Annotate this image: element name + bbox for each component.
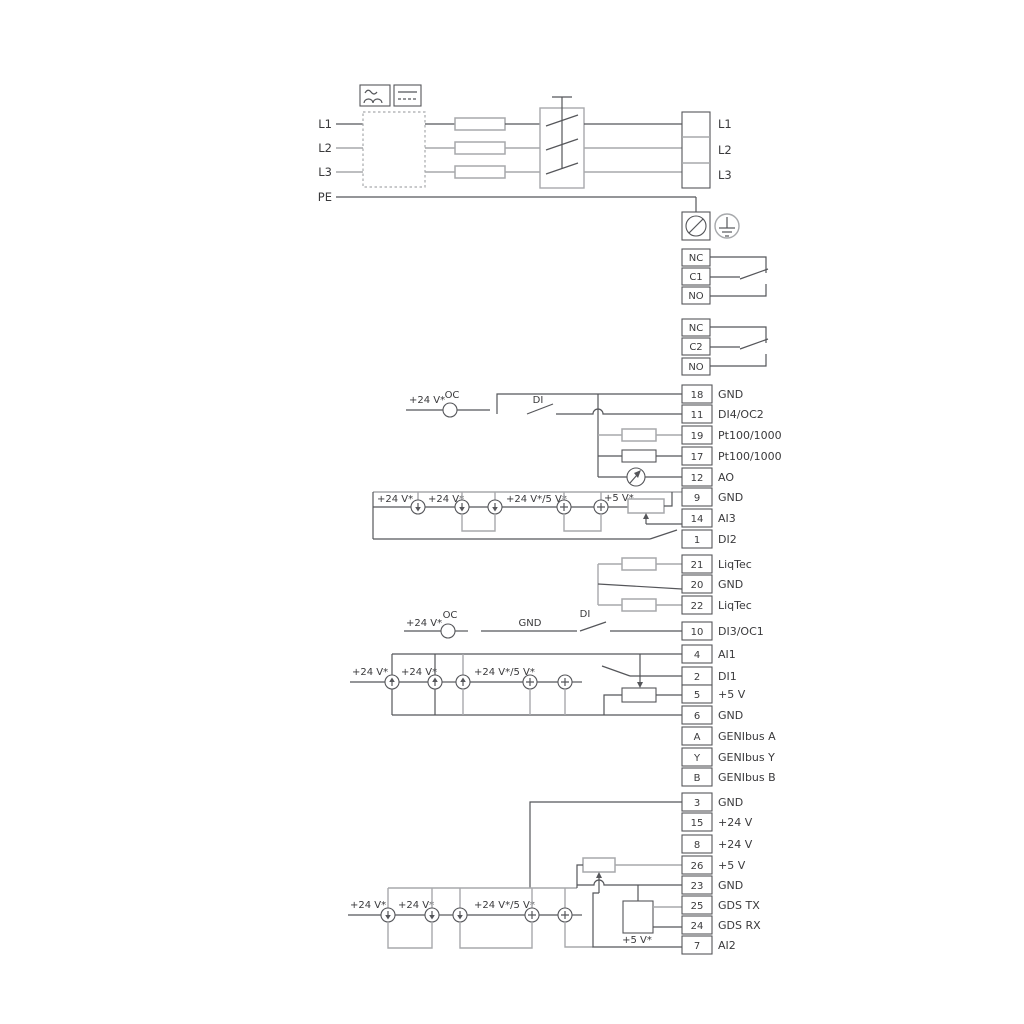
terminal-label: AI2	[718, 939, 736, 952]
terminal-row: 20GND	[682, 575, 743, 593]
relay1-nc: NC	[689, 253, 703, 264]
terminal-row: 19Pt100/1000	[682, 426, 782, 444]
terminal-label: GND	[718, 388, 743, 401]
di3-switch	[580, 622, 606, 631]
terminal-row: 12AO	[682, 468, 734, 486]
terminal-row: 15+24 V	[682, 813, 753, 831]
di2-switch	[650, 530, 677, 539]
label-di: DI	[533, 395, 544, 406]
relay-1: NC C1 NO	[682, 249, 768, 304]
terminal-number: 11	[691, 410, 704, 421]
earth-ground-icon	[715, 214, 739, 238]
label-gnd: GND	[519, 618, 542, 629]
terminal-row: 24GDS RX	[682, 916, 761, 934]
terminal-row: 23GND	[682, 876, 743, 894]
label-24v: +24 V*	[409, 395, 445, 406]
circuit-liqtec	[598, 558, 682, 611]
terminal-label: GND	[718, 879, 743, 892]
oc-source-icon	[441, 624, 455, 638]
label-24v-5v: +24 V*/5 V*	[474, 900, 535, 911]
terminal-number: 7	[694, 941, 700, 952]
terminal-number: A	[694, 732, 701, 743]
output-label-l1: L1	[718, 117, 732, 131]
terminal-number: 26	[691, 861, 704, 872]
di1-switch	[602, 666, 630, 676]
terminal-number: 6	[694, 711, 700, 722]
analog-output-meter-icon	[627, 468, 645, 486]
terminal-row: 9GND	[682, 488, 743, 506]
terminal-row: 4AI1	[682, 645, 736, 663]
terminal-label: +5 V	[718, 688, 746, 701]
liqtec-sensor-2	[622, 599, 656, 611]
circuit-bottom: +24 V* +24 V* +24 V*/5 V*	[348, 802, 682, 948]
ac-symbol-icon	[360, 85, 390, 106]
terminal-label: GDS RX	[718, 919, 761, 932]
terminal-number: 18	[691, 390, 704, 401]
terminal-row: AGENIbus A	[682, 727, 776, 745]
terminal-strip-b: 21LiqTec 20GND 22LiqTec	[682, 555, 752, 614]
fuse-l1	[455, 118, 505, 130]
terminal-number: 20	[691, 580, 704, 591]
terminal-strip-c: 10DI3/OC1	[682, 622, 764, 640]
terminal-strip-e: AGENIbus A YGENIbus Y BGENIbus B	[682, 727, 776, 786]
terminal-row: 26+5 V	[682, 856, 746, 874]
terminal-row: 10DI3/OC1	[682, 622, 764, 640]
relay2-switch	[740, 339, 768, 349]
liqtec-sensor-1	[622, 558, 656, 570]
dc-symbol-icon	[394, 85, 421, 106]
output-label-l3: L3	[718, 168, 732, 182]
pe-terminal-icon	[682, 212, 710, 240]
terminal-row: 8+24 V	[682, 835, 753, 853]
input-label-pe: PE	[318, 190, 332, 204]
wiring-diagram: L1 L2 L3 PE	[0, 0, 1024, 1024]
gds-sensor: +5 V*	[622, 885, 682, 946]
terminal-number: 24	[691, 921, 704, 932]
terminal-row: 22LiqTec	[682, 596, 752, 614]
terminal-number: 9	[694, 493, 700, 504]
main-switch	[540, 97, 584, 188]
circuit-ai3: +24 V* +24 V* +24 V*/5 V* +5 V*	[373, 492, 682, 539]
power-section: L1 L2 L3 PE	[318, 85, 732, 212]
terminal-row: 3GND	[682, 793, 743, 811]
label-24v-a: +24 V*	[352, 667, 388, 678]
oc-source-icon	[443, 403, 457, 417]
wiring-diagram-page: L1 L2 L3 PE	[0, 0, 1024, 1024]
terminal-row: 6GND	[682, 706, 743, 724]
terminal-number: 19	[691, 431, 704, 442]
terminal-label: AI1	[718, 648, 736, 661]
terminal-number: 2	[694, 672, 700, 683]
terminal-strip-a: 18GND 11DI4/OC2 19Pt100/1000 17Pt100/100…	[682, 385, 782, 548]
terminal-row: 25GDS TX	[682, 896, 760, 914]
terminal-number: 8	[694, 840, 700, 851]
terminal-number: Y	[693, 753, 701, 764]
terminal-number: 14	[691, 514, 704, 525]
terminal-label: GND	[718, 709, 743, 722]
terminal-number: 23	[691, 881, 704, 892]
relay2-nc: NC	[689, 323, 703, 334]
terminal-label: DI1	[718, 670, 737, 683]
terminal-label: +24 V	[718, 816, 753, 829]
input-label-l2: L2	[318, 141, 332, 155]
relay1-no: NO	[688, 291, 703, 302]
terminal-label: DI2	[718, 533, 737, 546]
terminal-number: 12	[691, 473, 704, 484]
terminal-label: GENIbus A	[718, 730, 776, 743]
terminal-row: 11DI4/OC2	[682, 405, 764, 423]
mains-terminal-block: L1 L2 L3	[682, 112, 732, 188]
label-24v-a: +24 V*	[377, 494, 413, 505]
terminal-number: 25	[691, 901, 704, 912]
terminal-row: BGENIbus B	[682, 768, 776, 786]
relay2-no: NO	[688, 362, 703, 373]
terminal-label: +24 V	[718, 838, 753, 851]
label-24v: +24 V*	[406, 618, 442, 629]
terminal-row: 17Pt100/1000	[682, 447, 782, 465]
terminal-label: AO	[718, 471, 734, 484]
terminal-row: 18GND	[682, 385, 743, 403]
output-label-l2: L2	[718, 143, 732, 157]
terminal-label: DI3/OC1	[718, 625, 764, 638]
terminal-label: Pt100/1000	[718, 429, 782, 442]
terminal-row: 7AI2	[682, 936, 736, 954]
terminal-number: 3	[694, 798, 700, 809]
terminal-row: 14AI3	[682, 509, 736, 527]
terminal-row: YGENIbus Y	[682, 748, 775, 766]
terminal-row: 21LiqTec	[682, 555, 752, 573]
label-24v-a: +24 V*	[350, 900, 386, 911]
current-source-icon	[411, 500, 502, 514]
terminal-number: B	[694, 773, 701, 784]
terminal-number: 15	[691, 818, 704, 829]
label-oc: OC	[445, 390, 460, 401]
terminal-number: 22	[691, 601, 704, 612]
input-label-l1: L1	[318, 117, 332, 131]
circuit-pt100-ao	[598, 429, 682, 486]
relay-2: NC C2 NO	[682, 319, 768, 375]
terminal-row: 5+5 V	[682, 685, 746, 703]
terminal-strip-d: 4AI1 2DI1 5+5 V 6GND	[682, 645, 746, 724]
label-5v: +5 V*	[622, 935, 652, 946]
relay2-c2: C2	[689, 342, 702, 353]
label-oc: OC	[443, 610, 458, 621]
terminal-number: 5	[694, 690, 700, 701]
terminal-number: 21	[691, 560, 704, 571]
pe-earth-section	[682, 212, 739, 240]
pt100-sensor-1	[622, 429, 656, 441]
circuit-ai1: +24 V* +24 V* +24 V*/5 V*	[350, 654, 682, 715]
terminal-label: +5 V	[718, 859, 746, 872]
label-di: DI	[580, 609, 591, 620]
terminal-label: LiqTec	[718, 558, 752, 571]
relay1-c1: C1	[689, 272, 702, 283]
input-label-l3: L3	[318, 165, 332, 179]
relay1-switch	[740, 269, 768, 279]
terminal-number: 10	[691, 627, 704, 638]
terminal-label: GENIbus Y	[718, 751, 775, 764]
terminal-label: GND	[718, 796, 743, 809]
terminal-label: Pt100/1000	[718, 450, 782, 463]
terminal-label: GND	[718, 491, 743, 504]
terminal-label: DI4/OC2	[718, 408, 764, 421]
fuse-l2	[455, 142, 505, 154]
terminal-number: 4	[694, 650, 700, 661]
terminal-number: 17	[691, 452, 704, 463]
terminal-row: 2DI1	[682, 667, 737, 685]
pt100-sensor-2	[622, 450, 656, 462]
circuit-di3-oc1: +24 V* OC GND DI	[404, 609, 682, 638]
filter-box	[363, 112, 425, 187]
ai1-potentiometer	[604, 654, 682, 715]
ai3-potentiometer	[628, 492, 682, 524]
terminal-number: 1	[694, 535, 700, 546]
ai2-potentiometer	[577, 858, 682, 893]
terminal-label: AI3	[718, 512, 736, 525]
fuse-l3	[455, 166, 505, 178]
terminal-strip-f: 3GND 15+24 V 8+24 V 26+5 V 23GND 25GDS T…	[682, 793, 761, 954]
terminal-label: GENIbus B	[718, 771, 776, 784]
terminal-label: GDS TX	[718, 899, 760, 912]
terminal-row: 1DI2	[682, 530, 737, 548]
terminal-label: GND	[718, 578, 743, 591]
terminal-label: LiqTec	[718, 599, 752, 612]
